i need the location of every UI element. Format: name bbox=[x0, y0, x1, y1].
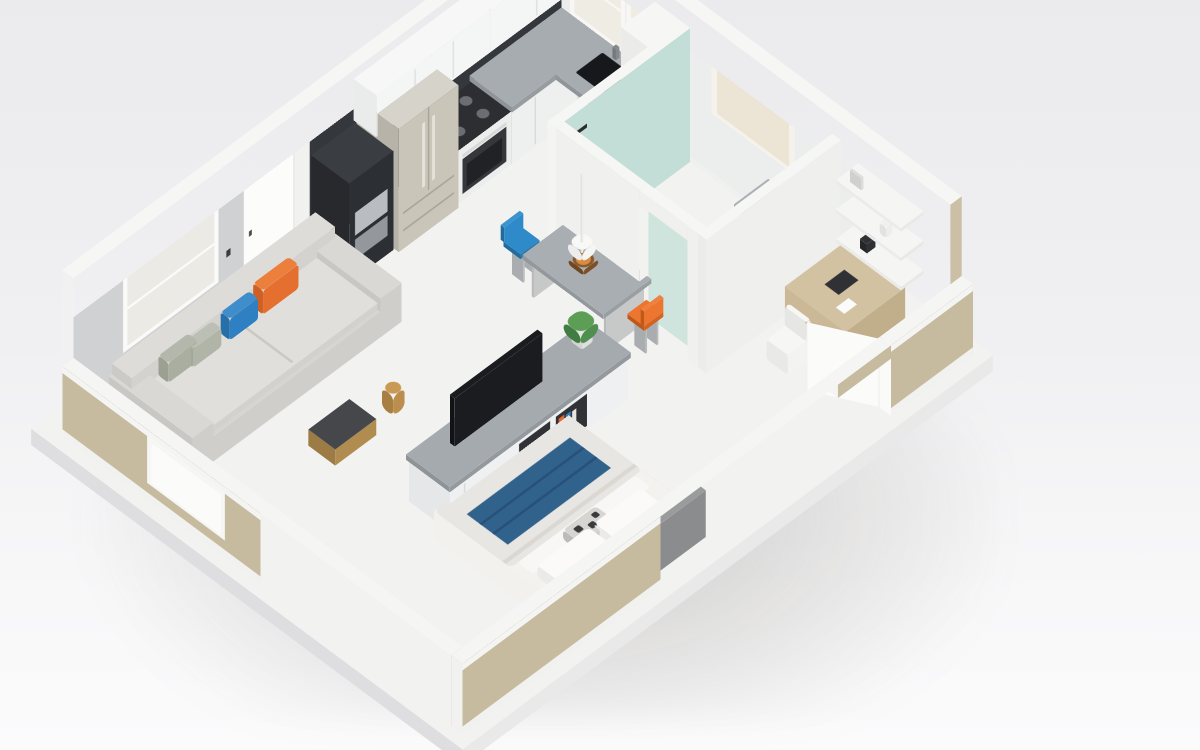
refrigerator-fridge-handle-left bbox=[422, 122, 425, 188]
upper-cabinet-1-cab-seam-2 bbox=[453, 41, 454, 78]
wall-nw-light-switch bbox=[226, 248, 230, 258]
wall-oven-column-oven-upper bbox=[355, 189, 388, 236]
canvas-background bbox=[0, 0, 1200, 750]
pillow-patterned-pattern-dot-3 bbox=[590, 511, 600, 518]
wall-ne-kitchen-window-1-sash bbox=[574, 0, 621, 13]
refrigerator-fridge-door-seam bbox=[428, 107, 429, 191]
refrigerator-freezer-drawer-seam bbox=[403, 174, 454, 214]
wall-nw-door-handle bbox=[249, 229, 252, 236]
stool-orange-leg-1-face-s bbox=[646, 326, 647, 354]
pendant-cord-face-s bbox=[582, 174, 583, 254]
wall-se-left-face-w bbox=[451, 655, 462, 734]
counter-nw-base-cabinet-seam bbox=[535, 97, 536, 145]
range-burner-2 bbox=[457, 94, 475, 108]
stool-orange-leg-2-face-s bbox=[657, 317, 658, 345]
desk-laptop bbox=[825, 270, 859, 295]
range-burner-4 bbox=[474, 107, 492, 121]
upper-cabinet-2-cab-seam bbox=[536, 0, 537, 16]
desk-paper bbox=[836, 298, 857, 314]
shelf-decor-frame-face-s bbox=[861, 177, 863, 191]
refrigerator-fridge-handle-right bbox=[432, 114, 435, 180]
